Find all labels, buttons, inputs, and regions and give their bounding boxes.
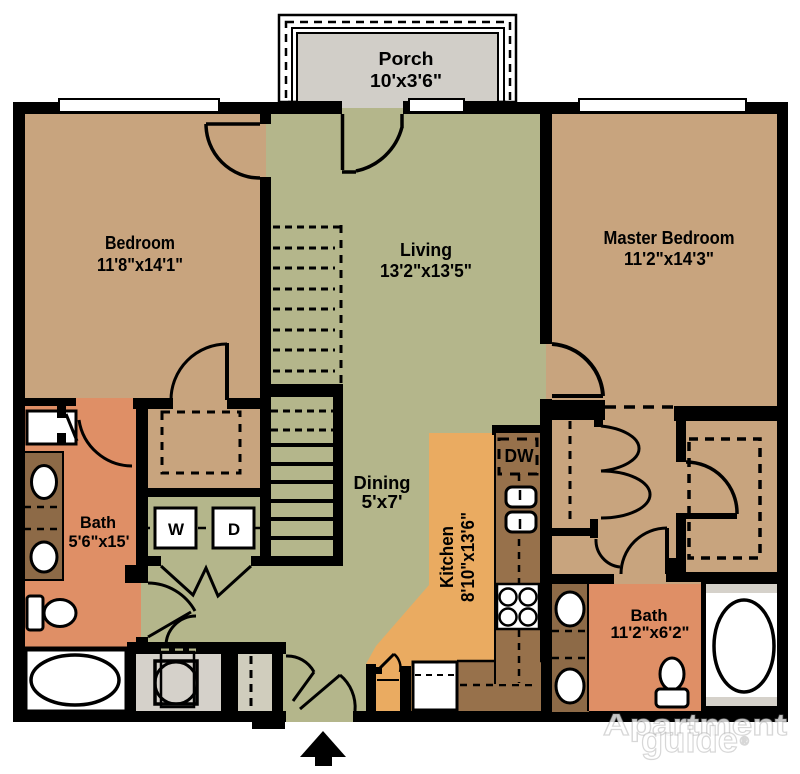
svg-text:11'2"x14'3": 11'2"x14'3" (624, 249, 714, 269)
svg-text:Living: Living (400, 240, 452, 260)
svg-text:8'10"x13'6": 8'10"x13'6" (458, 512, 478, 602)
svg-text:DW: DW (505, 446, 534, 466)
svg-text:11'8"x14'1": 11'8"x14'1" (97, 255, 183, 275)
svg-text:Master Bedroom: Master Bedroom (604, 228, 735, 248)
svg-text:Porch: Porch (379, 49, 434, 69)
svg-text:®: ® (740, 734, 749, 748)
svg-text:10'x3'6": 10'x3'6" (370, 71, 442, 91)
svg-text:Bath: Bath (80, 513, 116, 532)
svg-text:guide: guide (641, 719, 738, 760)
svg-text:W: W (168, 520, 185, 539)
svg-text:Kitchen: Kitchen (437, 526, 457, 588)
svg-text:Dining: Dining (354, 473, 411, 493)
svg-text:5'x7': 5'x7' (362, 492, 403, 512)
svg-text:Bedroom: Bedroom (105, 233, 175, 253)
svg-text:13'2"x13'5": 13'2"x13'5" (380, 261, 472, 281)
svg-text:D: D (228, 520, 240, 539)
svg-text:11'2"x6'2": 11'2"x6'2" (611, 623, 690, 642)
svg-text:5'6"x15': 5'6"x15' (69, 532, 130, 551)
